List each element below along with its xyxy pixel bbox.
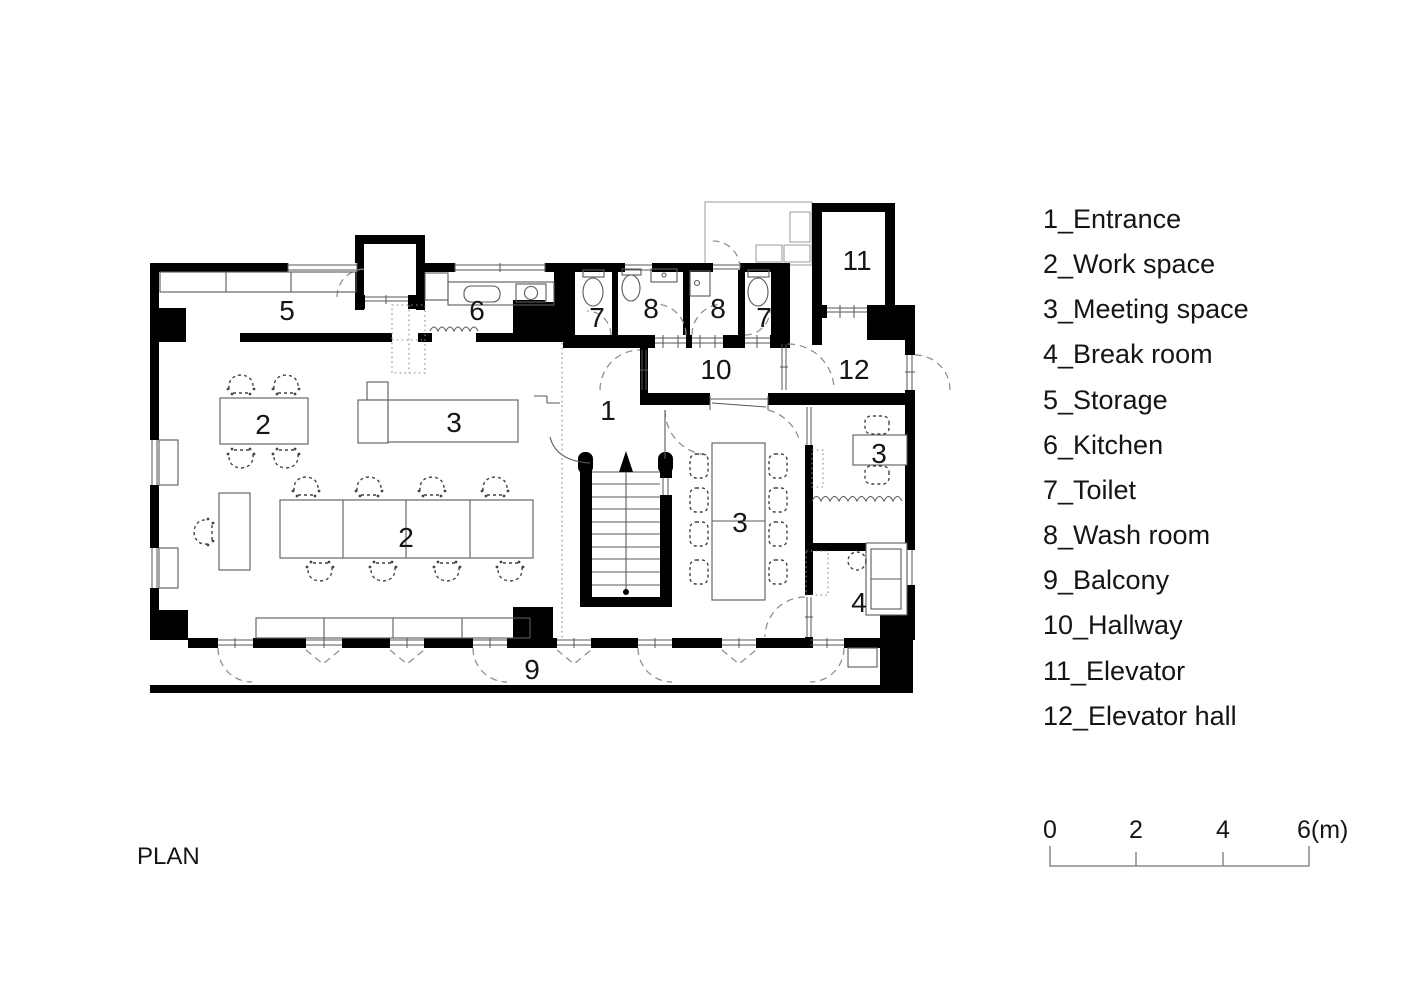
room-label-meeting-open: 3	[446, 407, 462, 438]
balcony-planter	[848, 648, 877, 667]
room-label-breakroom: 4	[851, 587, 867, 618]
scale-tick-4: 4	[1216, 816, 1230, 844]
window-top-kitchen	[455, 263, 545, 272]
floor-plan-page: 5 6 7 8 8 7 11 10 12 1 2 3 2 3 3 4 9 1_E…	[0, 0, 1427, 1000]
washroom-right-fixtures	[690, 271, 710, 296]
room-label-toilet-left: 7	[589, 302, 605, 333]
stool	[848, 552, 866, 570]
walls	[150, 203, 915, 693]
legend-item-kitchen: 6_Kitchen	[1043, 430, 1163, 460]
sofa	[866, 543, 907, 615]
room-label-meeting-main: 3	[732, 507, 748, 538]
meeting-shelf	[812, 450, 823, 487]
room-label-workspace-2: 2	[398, 522, 414, 553]
curtain-kitchen	[430, 327, 478, 331]
room-label-toilet-right: 7	[756, 302, 772, 333]
plan-title: PLAN	[137, 843, 200, 870]
legend-item-washroom: 8_Wash room	[1043, 520, 1210, 550]
room-label-elevator-hall: 12	[838, 354, 869, 385]
legend-item-workspace: 2_Work space	[1043, 249, 1215, 279]
floor-plan-drawing: 5 6 7 8 8 7 11 10 12 1 2 3 2 3 3 4 9 1_E…	[0, 0, 1427, 1000]
room-label-kitchen: 6	[469, 295, 485, 326]
level-change-mark	[534, 396, 560, 403]
legend-item-balcony: 9_Balcony	[1043, 565, 1170, 595]
door-vestibule	[365, 295, 408, 304]
legend-item-toilet: 7_Toilet	[1043, 475, 1137, 505]
scale-bar: 0 2 4 6(m)	[1043, 816, 1348, 866]
door-hallway-meeting	[710, 396, 768, 410]
room-label-washroom-right: 8	[710, 293, 726, 324]
scale-tick-2: 2	[1129, 816, 1143, 844]
scale-tick-6m: 6(m)	[1297, 816, 1348, 844]
scale-tick-0: 0	[1043, 816, 1057, 844]
legend-item-entrance: 1_Entrance	[1043, 204, 1181, 234]
door-meeting-breakroom	[805, 597, 813, 637]
outdoor-service-area	[705, 202, 812, 265]
elevator-door	[827, 305, 867, 318]
room-label-entrance: 1	[600, 395, 616, 426]
room-label-elevator: 11	[842, 245, 871, 276]
window-left-1	[150, 440, 178, 485]
window-stairwell	[660, 478, 672, 495]
window-top-washroom	[625, 263, 652, 272]
room-label-balcony: 9	[524, 654, 540, 685]
door-elevatorhall-exterior	[905, 355, 915, 390]
curtain-meeting-small	[812, 497, 902, 502]
window-bench	[256, 618, 530, 638]
door-toilet-right	[745, 335, 770, 348]
toilet-right-fixture	[748, 270, 769, 306]
door-outdoor	[713, 265, 740, 269]
room-label-washroom-left: 8	[643, 293, 659, 324]
stair-up-arrow	[619, 451, 633, 472]
legend: 1_Entrance 2_Work space 3_Meeting space …	[1043, 204, 1249, 731]
room-label-meeting-small: 3	[871, 438, 887, 469]
legend-item-storage: 5_Storage	[1043, 385, 1168, 415]
room-label-hallway: 10	[700, 354, 731, 385]
window-top-storage	[288, 263, 357, 272]
side-table	[219, 493, 250, 570]
open-meeting-table	[358, 382, 518, 443]
door-hallway-elevatorhall	[780, 344, 788, 390]
legend-item-breakroom: 4_Break room	[1043, 339, 1213, 369]
window-left-2	[150, 548, 178, 588]
room-label-workspace-1: 2	[255, 409, 271, 440]
legend-item-hallway: 10_Hallway	[1043, 610, 1183, 640]
legend-item-elevator: 11_Elevator	[1043, 656, 1185, 686]
staircase	[592, 451, 660, 595]
panel-meeting-east	[807, 407, 811, 445]
storage-shelves	[160, 272, 356, 292]
legend-item-meeting: 3_Meeting space	[1043, 294, 1249, 324]
door-washroom-left	[655, 335, 686, 348]
room-label-storage: 5	[279, 295, 295, 326]
legend-item-elevator-hall: 12_Elevator hall	[1043, 701, 1237, 731]
toilet-left-fixture	[583, 270, 604, 306]
door-washroom-right	[692, 335, 723, 348]
